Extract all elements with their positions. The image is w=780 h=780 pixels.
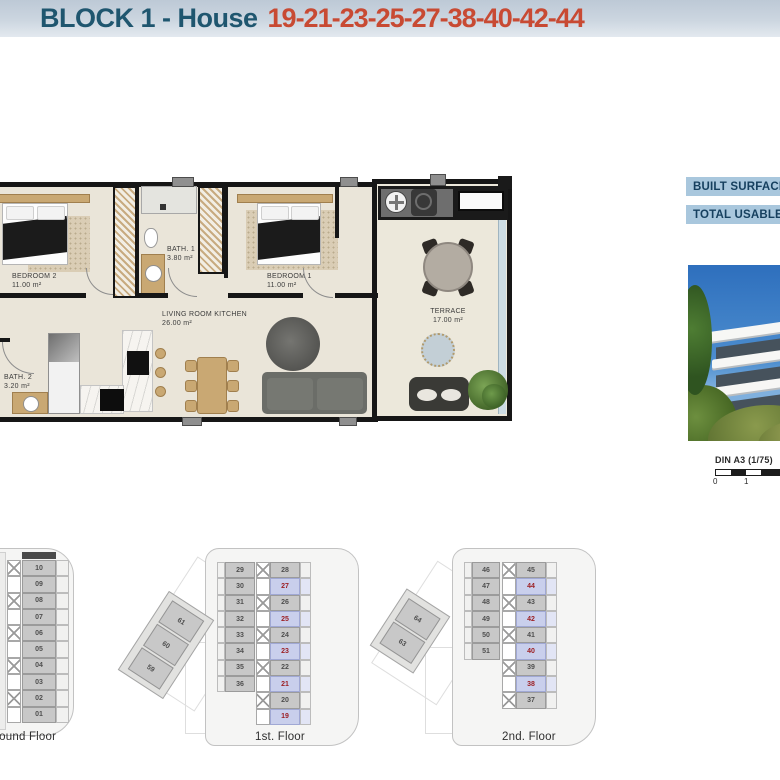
wall xyxy=(0,293,86,298)
terrace-round-rug xyxy=(421,333,455,367)
unit-row: 06 xyxy=(22,625,69,641)
unit-row: 46 xyxy=(464,562,500,578)
unit-row: 08 xyxy=(22,593,69,609)
unit-row: 33 xyxy=(217,627,255,643)
bedroom2-headboard-shelf xyxy=(0,194,90,203)
room-label-living: LIVING ROOM KITCHEN 26.00 m² xyxy=(162,310,247,328)
floor-label-first: 1st. Floor xyxy=(255,731,305,743)
unit-cell: 46 xyxy=(472,562,500,578)
wardrobe-bedroom2 xyxy=(113,186,137,298)
dining-chair xyxy=(227,360,239,372)
unit-cell: 03 xyxy=(22,674,56,690)
bedroom2-bed xyxy=(2,203,68,265)
unit-cell: 47 xyxy=(472,578,500,594)
bath1-vanity xyxy=(141,254,165,294)
wall xyxy=(335,293,378,298)
unit-row: 45 xyxy=(516,562,557,578)
dining-chair xyxy=(185,400,197,412)
unit-row: 40 xyxy=(516,643,557,659)
plant-icon xyxy=(482,384,506,408)
room-label-bath1: BATH. 1 3.80 m² xyxy=(167,245,195,263)
dining-chair xyxy=(185,380,197,392)
built-surface-label: BUILT SURFACE xyxy=(686,177,780,196)
unit-row: 23 xyxy=(270,643,311,659)
unit-cell: 02 xyxy=(22,690,56,706)
wall-stud xyxy=(340,177,358,187)
bath1-toilet xyxy=(144,228,158,248)
unit-row: 47 xyxy=(464,578,500,594)
terrace-table xyxy=(423,242,473,292)
unit-row: 25 xyxy=(270,611,311,627)
unit-row: 19 xyxy=(270,709,311,725)
washing-machine-icon xyxy=(411,189,437,216)
ground-floor-plan: 10 09 08 07 06 05 04 03 02 01 xyxy=(0,548,76,740)
unit-cell: 49 xyxy=(472,611,500,627)
unit-cell: 05 xyxy=(22,641,56,657)
bar-stool xyxy=(155,367,166,378)
terrace-utility-zone xyxy=(378,186,508,220)
unit-row: 42 xyxy=(516,611,557,627)
scale-tick: 0 xyxy=(713,477,717,486)
wall-stud xyxy=(339,417,357,426)
room-label-bath2: BATH. 2 3.20 m² xyxy=(4,373,32,391)
unit-cell: 31 xyxy=(225,595,255,611)
unit-cell: 44 xyxy=(516,578,546,594)
scale-bar: DIN A3 (1/75) 0 1 xyxy=(715,455,780,486)
bedroom1-headboard-shelf xyxy=(237,194,333,203)
unit-row: 03 xyxy=(22,674,69,690)
wall xyxy=(335,182,339,238)
unit-row: 04 xyxy=(22,658,69,674)
unit-row: 28 xyxy=(270,562,311,578)
storage-box xyxy=(458,191,504,211)
fridge-cabinet xyxy=(48,333,80,414)
main-floorplan: BEDROOM 2 11.00 m² BATH. 1 3.80 m² BEDRO… xyxy=(0,178,514,428)
dining-table xyxy=(197,357,227,414)
unit-row: 32 xyxy=(217,611,255,627)
unit-cell: 06 xyxy=(22,625,56,641)
wall-stud xyxy=(172,177,194,187)
unit-cell: 09 xyxy=(22,576,56,592)
unit-row: 09 xyxy=(22,576,69,592)
unit-cell: 19 xyxy=(270,709,300,725)
unit-cell: 38 xyxy=(516,676,546,692)
ac-unit-icon xyxy=(385,191,407,213)
unit-row: 48 xyxy=(464,595,500,611)
unit-cell: 21 xyxy=(270,676,300,692)
unit-row: 30 xyxy=(217,578,255,594)
living-round-rug xyxy=(266,317,320,371)
tv-icon xyxy=(100,389,124,411)
scale-tick: 1 xyxy=(744,477,748,486)
unit-row: 44 xyxy=(516,578,557,594)
unit-cell: 40 xyxy=(516,643,546,659)
unit-row: 34 xyxy=(217,643,255,659)
floor-label-second: 2nd. Floor xyxy=(502,731,556,743)
unit-cell: 24 xyxy=(270,627,300,643)
terrace-bench xyxy=(409,377,469,411)
unit-cell: 51 xyxy=(472,643,500,659)
unit-cell: 39 xyxy=(516,660,546,676)
floor-label-ground: Ground Floor xyxy=(0,731,56,743)
unit-cell: 27 xyxy=(270,578,300,594)
unit-row: 31 xyxy=(217,595,255,611)
scale-title: DIN A3 (1/75) xyxy=(715,455,780,465)
unit-row: 49 xyxy=(464,611,500,627)
bedroom1-bed xyxy=(257,203,321,265)
unit-row: 39 xyxy=(516,660,557,676)
unit-row: 37 xyxy=(516,692,557,708)
dining-chair xyxy=(227,380,239,392)
wall xyxy=(137,293,168,298)
unit-row: 20 xyxy=(270,692,311,708)
unit-cell: 34 xyxy=(225,643,255,659)
sofa xyxy=(262,372,367,414)
page-header: BLOCK 1 - House 19-21-23-25-27-38-40-42-… xyxy=(0,0,780,37)
unit-cell: 10 xyxy=(22,560,56,576)
unit-row: 07 xyxy=(22,609,69,625)
unit-cell: 28 xyxy=(270,562,300,578)
unit-cell: 32 xyxy=(225,611,255,627)
unit-cell: 04 xyxy=(22,658,56,674)
page-title: BLOCK 1 - House xyxy=(40,3,258,34)
photo-vegetation xyxy=(688,285,712,395)
unit-cell: 08 xyxy=(22,593,56,609)
unit-cell: 26 xyxy=(270,595,300,611)
bath2-vanity xyxy=(12,392,48,414)
unit-cell: 48 xyxy=(472,595,500,611)
unit-cell: 35 xyxy=(225,660,255,676)
room-label-terrace: TERRACE 17.00 m² xyxy=(416,307,480,325)
unit-row: 21 xyxy=(270,676,311,692)
unit-cell: 29 xyxy=(225,562,255,578)
second-floor-plan: 64 63 46 47 48 49 50 51 45 44 43 42 41 4… xyxy=(370,542,595,750)
room-label-bedroom2: BEDROOM 2 11.00 m² xyxy=(12,272,57,290)
page-title-house-numbers: 19-21-23-25-27-38-40-42-44 xyxy=(268,3,584,34)
wardrobe-bedroom1 xyxy=(198,186,224,274)
unit-row: 43 xyxy=(516,595,557,611)
unit-row: 26 xyxy=(270,595,311,611)
wall-stud xyxy=(182,417,202,426)
unit-cell: 50 xyxy=(472,627,500,643)
brochure-page: BLOCK 1 - House 19-21-23-25-27-38-40-42-… xyxy=(0,0,780,780)
wall xyxy=(228,293,303,298)
unit-row: 29 xyxy=(217,562,255,578)
unit-row: 27 xyxy=(270,578,311,594)
dining-chair xyxy=(185,360,197,372)
unit-cell: 36 xyxy=(225,676,255,692)
unit-cell: 43 xyxy=(516,595,546,611)
unit-row: 35 xyxy=(217,660,255,676)
unit-cell: 33 xyxy=(225,627,255,643)
entrance-core xyxy=(22,552,56,559)
total-usable-label: TOTAL USABLE xyxy=(686,205,780,224)
unit-row: 38 xyxy=(516,676,557,692)
unit-cell: 30 xyxy=(225,578,255,594)
unit-cell: 45 xyxy=(516,562,546,578)
unit-cell: 25 xyxy=(270,611,300,627)
bar-stool xyxy=(155,348,166,359)
dining-chair xyxy=(227,400,239,412)
unit-cell: 20 xyxy=(270,692,300,708)
unit-row: 02 xyxy=(22,690,69,706)
unit-cell: 01 xyxy=(22,707,56,723)
unit-row: 36 xyxy=(217,676,255,692)
unit-cell: 23 xyxy=(270,643,300,659)
first-floor-plan: 61 60 59 29 30 31 32 33 34 35 36 28 27 2… xyxy=(125,542,360,750)
unit-cell: 42 xyxy=(516,611,546,627)
corner-wall xyxy=(498,176,512,189)
unit-cell: 37 xyxy=(516,692,546,708)
unit-row: 50 xyxy=(464,627,500,643)
bar-stool xyxy=(155,386,166,397)
wall-stud xyxy=(430,174,446,186)
unit-cell: 41 xyxy=(516,627,546,643)
unit-row: 51 xyxy=(464,643,500,659)
building-photo xyxy=(688,265,780,441)
unit-cell: 22 xyxy=(270,660,300,676)
wall xyxy=(135,182,139,298)
unit-row: 10 xyxy=(22,560,69,576)
unit-cell: 07 xyxy=(22,609,56,625)
unit-row: 01 xyxy=(22,707,69,723)
bath1-shower xyxy=(141,186,197,214)
shower-head-icon xyxy=(160,204,166,210)
scale-bar-segments xyxy=(715,469,780,476)
wall xyxy=(224,182,228,278)
unit-row: 41 xyxy=(516,627,557,643)
unit-row: 24 xyxy=(270,627,311,643)
unit-row: 05 xyxy=(22,641,69,657)
unit-row: 22 xyxy=(270,660,311,676)
kitchen-island xyxy=(122,330,153,412)
